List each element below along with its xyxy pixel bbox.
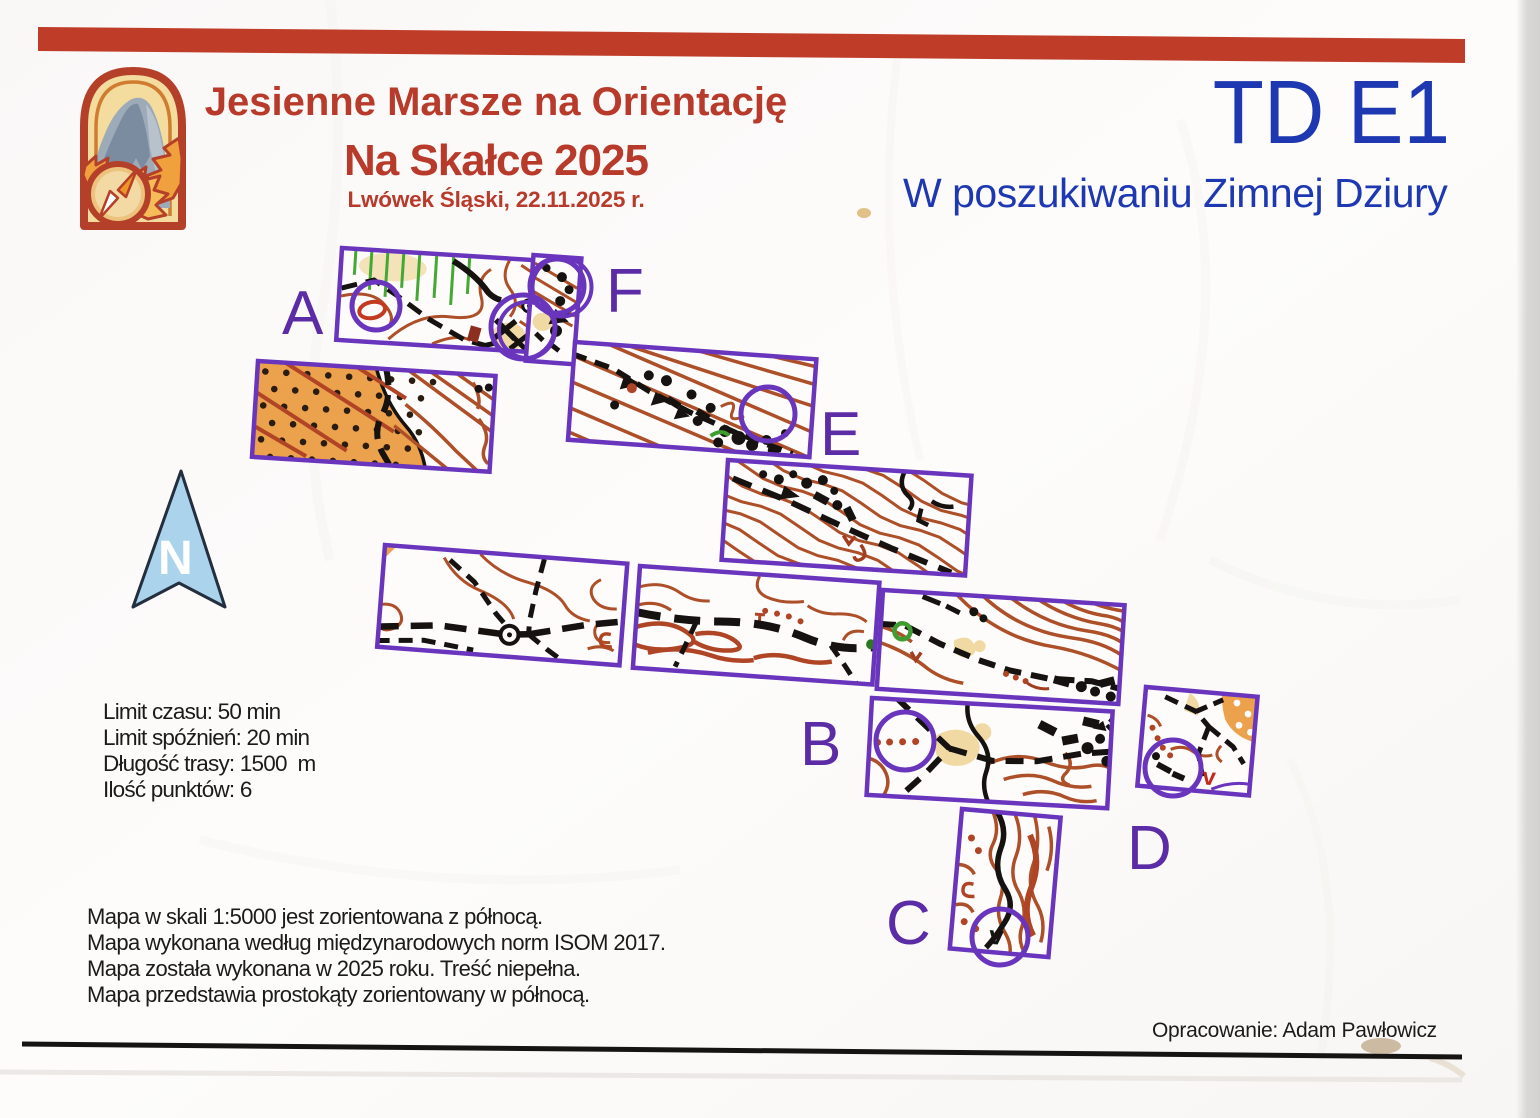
svg-text:E: E — [820, 400, 861, 469]
svg-text:F: F — [606, 257, 644, 326]
svg-text:N: N — [158, 532, 193, 585]
svg-text:D: D — [1127, 814, 1172, 883]
svg-text:C: C — [886, 889, 931, 958]
svg-text:A: A — [282, 279, 324, 348]
svg-text:B: B — [800, 710, 841, 779]
